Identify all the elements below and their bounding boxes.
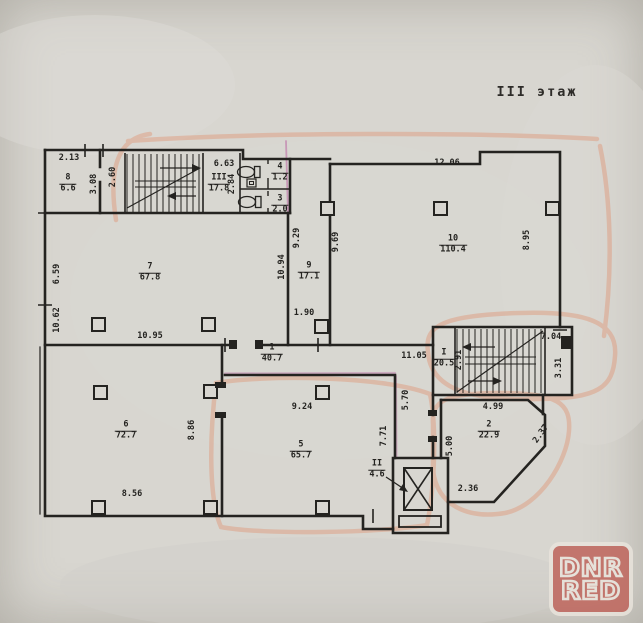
watermark-line-2: RED — [561, 579, 621, 602]
dim-label: 11.05 — [401, 351, 427, 361]
room-label-3: 32.0 — [271, 195, 288, 216]
dim-label: 6.63 — [214, 159, 234, 169]
room-label-6: 672.7 — [115, 421, 137, 442]
dim-label: 6.59 — [52, 264, 62, 284]
room-label-10: 10110.4 — [439, 235, 467, 256]
dim-label: 9.24 — [292, 402, 312, 412]
dim-label: 5.70 — [401, 390, 411, 410]
dim-label: 2.13 — [59, 153, 79, 163]
dim-label: 3.31 — [554, 358, 564, 378]
dim-label: 2.36 — [458, 484, 478, 494]
floor-title: III этаж — [496, 84, 577, 100]
dim-label: 9.29 — [292, 228, 302, 248]
room-label-9: 917.1 — [298, 262, 320, 283]
dim-label: 3.08 — [89, 174, 99, 194]
dnr-red-watermark: DNR RED — [549, 542, 633, 616]
dim-label: 8.95 — [522, 230, 532, 250]
room-label-I: I20.5 — [433, 349, 455, 370]
dim-label: 7.71 — [379, 426, 389, 446]
scanned-floor-plan: III этаж 86.6 III17.8 41.2 32.0 767.8 91… — [0, 0, 643, 623]
dim-label: 2.91 — [454, 350, 464, 370]
dim-label: 10.94 — [277, 254, 287, 280]
dim-label: 7.04 — [541, 332, 561, 342]
dim-label: 5.00 — [445, 436, 455, 456]
dim-label: 1.90 — [294, 308, 314, 318]
room-label-8: 86.6 — [59, 174, 76, 195]
dim-label: 8.56 — [122, 489, 142, 499]
dim-label: 10.62 — [52, 307, 62, 333]
dim-label: 9.69 — [331, 232, 341, 252]
room-label-1: 140.7 — [261, 344, 283, 365]
dim-label: 10.95 — [137, 331, 163, 341]
dim-label: 12.06 — [434, 158, 460, 168]
dim-label: 4.99 — [483, 402, 503, 412]
dim-label: 2.84 — [227, 174, 237, 194]
dim-label: 2.60 — [108, 167, 118, 187]
room-label-4: 41.2 — [271, 163, 288, 184]
room-label-II: II4.6 — [368, 460, 385, 481]
dim-label: 8.86 — [187, 420, 197, 440]
room-label-2: 222.9 — [478, 421, 500, 442]
room-label-5: 565.7 — [290, 441, 312, 462]
room-label-7: 767.8 — [139, 263, 161, 284]
